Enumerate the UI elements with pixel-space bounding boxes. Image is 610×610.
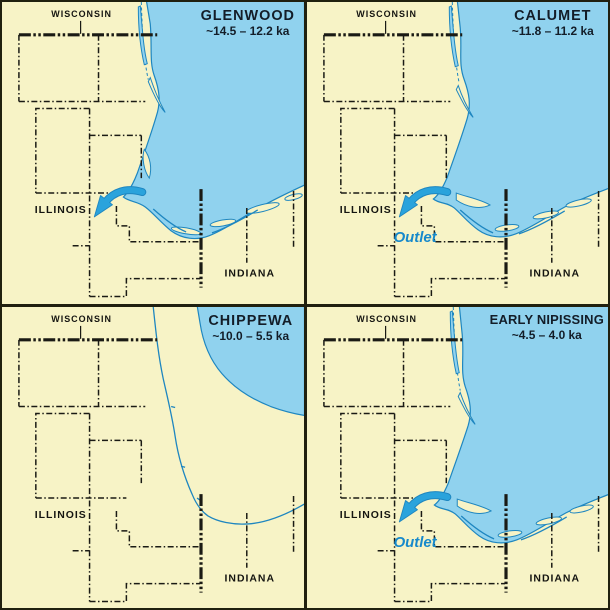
map-glenwood: WISCONSIN ILLINOIS INDIANA GLENWOOD ~14.… <box>2 2 304 304</box>
map-calumet: Outlet WISCONSIN ILLINOIS INDIANA CALUME… <box>307 2 609 304</box>
wisconsin-label: WISCONSIN <box>356 313 417 323</box>
panel-glenwood: WISCONSIN ILLINOIS INDIANA GLENWOOD ~14.… <box>2 2 304 304</box>
wisconsin-label: WISCONSIN <box>51 9 112 19</box>
outlet-label: Outlet <box>393 533 437 550</box>
indiana-label: INDIANA <box>529 269 579 280</box>
wisconsin-label: WISCONSIN <box>51 313 112 323</box>
indiana-label: INDIANA <box>225 269 275 280</box>
panel-age: ~14.5 – 12.2 ka <box>206 24 290 38</box>
panel-title: CHIPPEWA <box>208 312 293 328</box>
panel-title: GLENWOOD <box>201 8 295 24</box>
panel-chippewa: WISCONSIN ILLINOIS INDIANA CHIPPEWA ~10.… <box>2 307 304 609</box>
map-chippewa: WISCONSIN ILLINOIS INDIANA CHIPPEWA ~10.… <box>2 307 304 609</box>
wisconsin-label: WISCONSIN <box>356 9 417 19</box>
outlet-label: Outlet <box>393 229 437 246</box>
indiana-label: INDIANA <box>529 573 579 584</box>
illinois-label: ILLINOIS <box>339 509 391 520</box>
panel-age: ~10.0 – 5.5 ka <box>212 328 289 342</box>
map-early-nipissing: Outlet WISCONSIN ILLINOIS INDIANA EARLY … <box>307 307 609 609</box>
panel-title: CALUMET <box>514 8 591 24</box>
illinois-label: ILLINOIS <box>35 205 87 216</box>
illinois-label: ILLINOIS <box>339 205 391 216</box>
panel-calumet: Outlet WISCONSIN ILLINOIS INDIANA CALUME… <box>307 2 609 304</box>
indiana-label: INDIANA <box>225 573 275 584</box>
lake-michigan-phases-figure: WISCONSIN ILLINOIS INDIANA GLENWOOD ~14.… <box>0 0 610 610</box>
illinois-label: ILLINOIS <box>35 509 87 520</box>
panel-early-nipissing: Outlet WISCONSIN ILLINOIS INDIANA EARLY … <box>307 307 609 609</box>
panel-age: ~11.8 – 11.2 ka <box>511 24 593 38</box>
panel-title: EARLY NIPISSING <box>489 311 603 326</box>
panel-age: ~4.5 – 4.0 ka <box>511 327 581 341</box>
